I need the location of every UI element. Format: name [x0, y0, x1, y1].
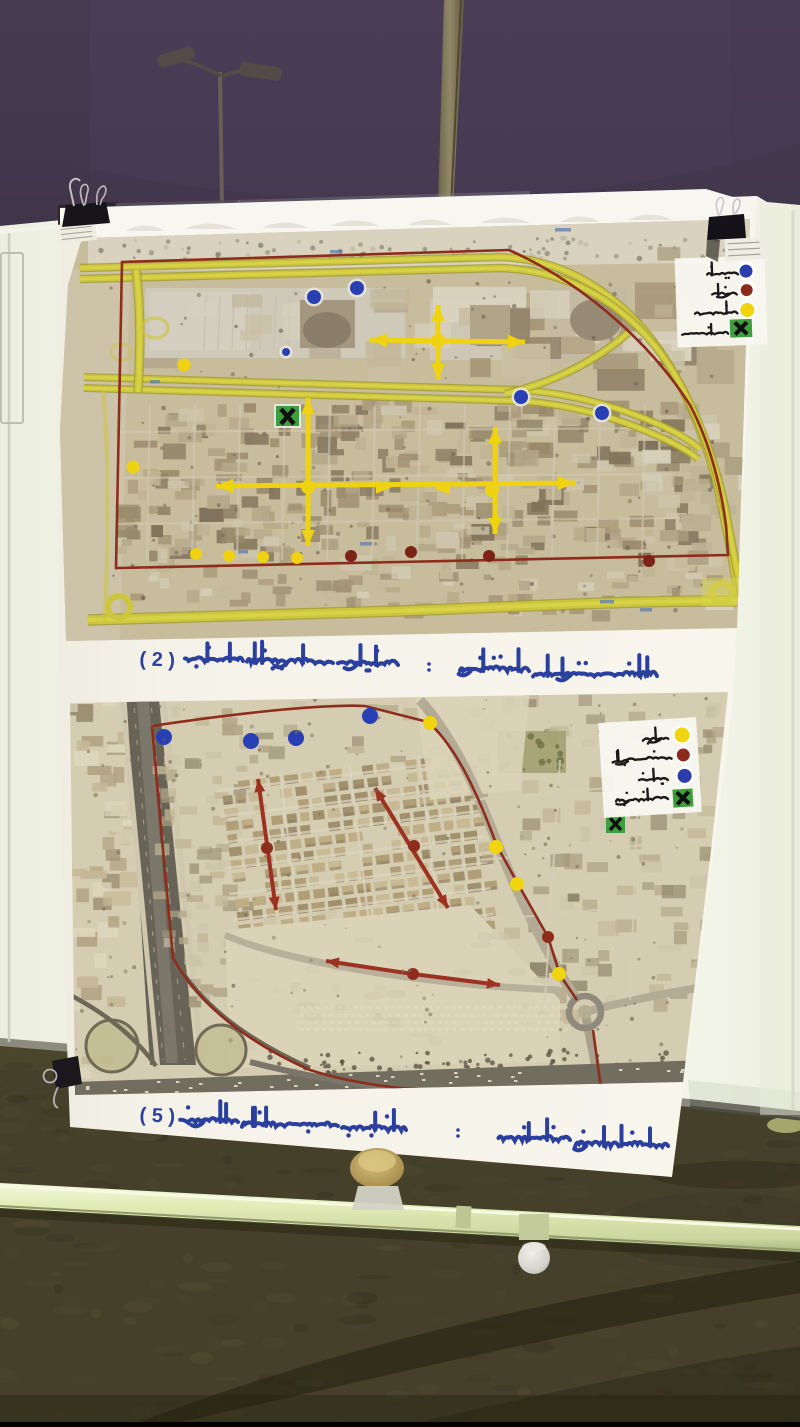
- svg-text:( 2 ): ( 2 ): [139, 648, 175, 671]
- svg-text:( 5 ): ( 5 ): [139, 1104, 176, 1128]
